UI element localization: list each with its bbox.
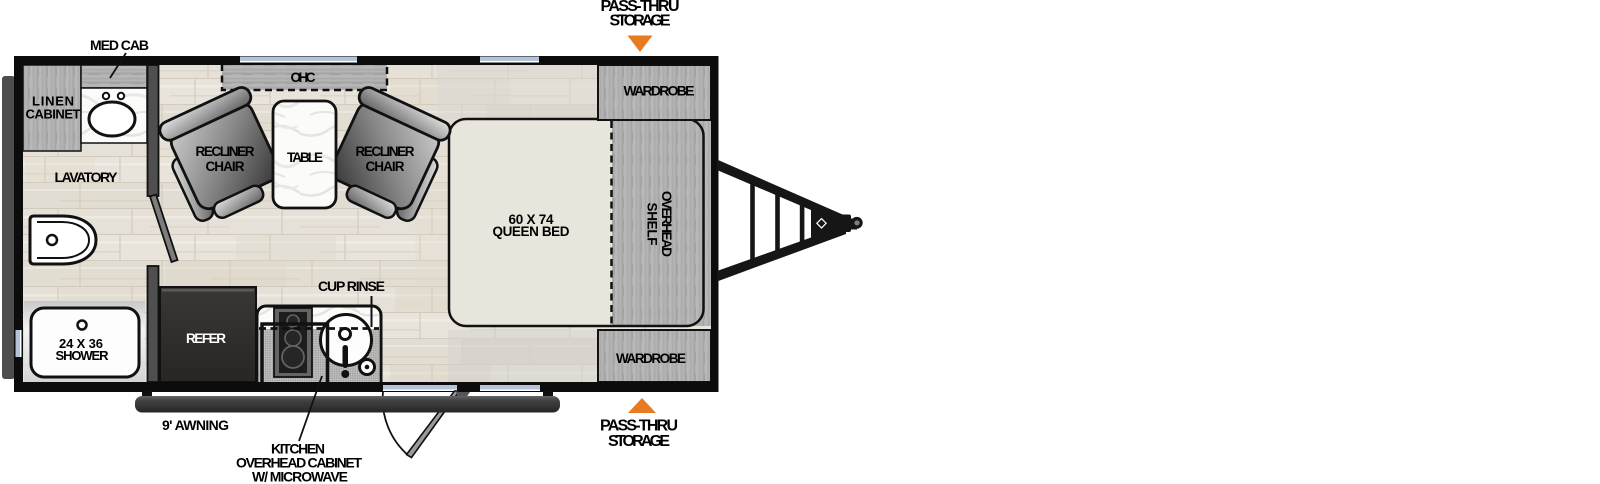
svg-text:CHAIR: CHAIR: [206, 159, 245, 174]
svg-text:PASS-THRU: PASS-THRU: [600, 418, 678, 435]
svg-text:REFER: REFER: [186, 331, 226, 346]
svg-text:STORAGE: STORAGE: [610, 13, 671, 30]
svg-text:SHOWER: SHOWER: [56, 348, 110, 363]
svg-text:SHELF: SHELF: [645, 203, 660, 246]
svg-text:RECLINER: RECLINER: [196, 144, 255, 159]
svg-text:WARDROBE: WARDROBE: [616, 351, 686, 366]
svg-text:STORAGE: STORAGE: [608, 433, 670, 450]
svg-text:W/ MICROWAVE: W/ MICROWAVE: [252, 469, 348, 484]
svg-text:OVERHEAD: OVERHEAD: [659, 191, 674, 257]
svg-text:9' AWNING: 9' AWNING: [162, 417, 229, 433]
svg-text:QUEEN BED: QUEEN BED: [493, 224, 570, 239]
svg-text:CUP RINSE: CUP RINSE: [318, 278, 385, 294]
svg-text:CHAIR: CHAIR: [366, 159, 405, 174]
svg-text:WARDROBE: WARDROBE: [624, 83, 695, 99]
svg-text:TABLE: TABLE: [287, 150, 323, 165]
svg-text:RECLINER: RECLINER: [356, 144, 415, 159]
svg-text:LAVATORY: LAVATORY: [55, 169, 119, 185]
svg-text:OHC: OHC: [291, 70, 316, 85]
svg-text:CABINET: CABINET: [26, 107, 81, 122]
svg-text:MED CAB: MED CAB: [90, 37, 149, 53]
